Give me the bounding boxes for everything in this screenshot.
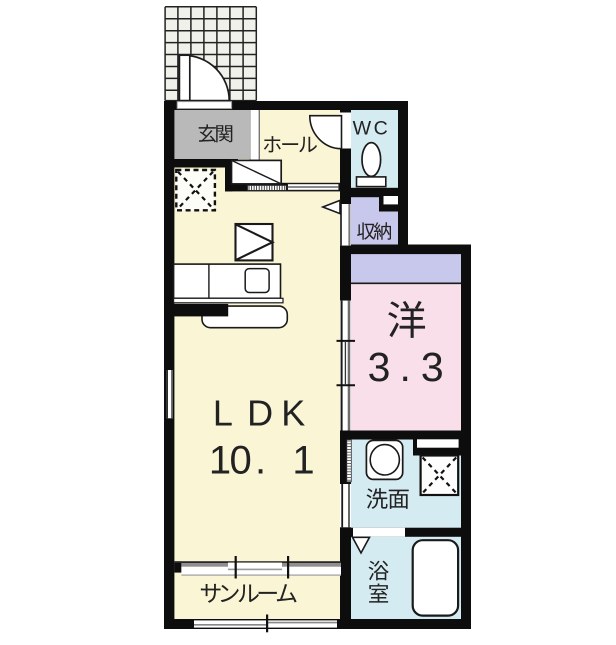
svg-text:D: D [247, 393, 273, 434]
svg-text:1: 1 [292, 438, 314, 482]
svg-text:0: 0 [229, 438, 251, 482]
svg-text:3: 3 [421, 344, 444, 390]
svg-text:L: L [213, 393, 233, 434]
svg-text:3: 3 [368, 344, 391, 390]
svg-text:K: K [281, 393, 305, 434]
svg-text:.: . [255, 438, 266, 482]
svg-text:1: 1 [209, 438, 231, 482]
svg-text:WC: WC [353, 117, 391, 139]
svg-text:.: . [399, 344, 410, 390]
